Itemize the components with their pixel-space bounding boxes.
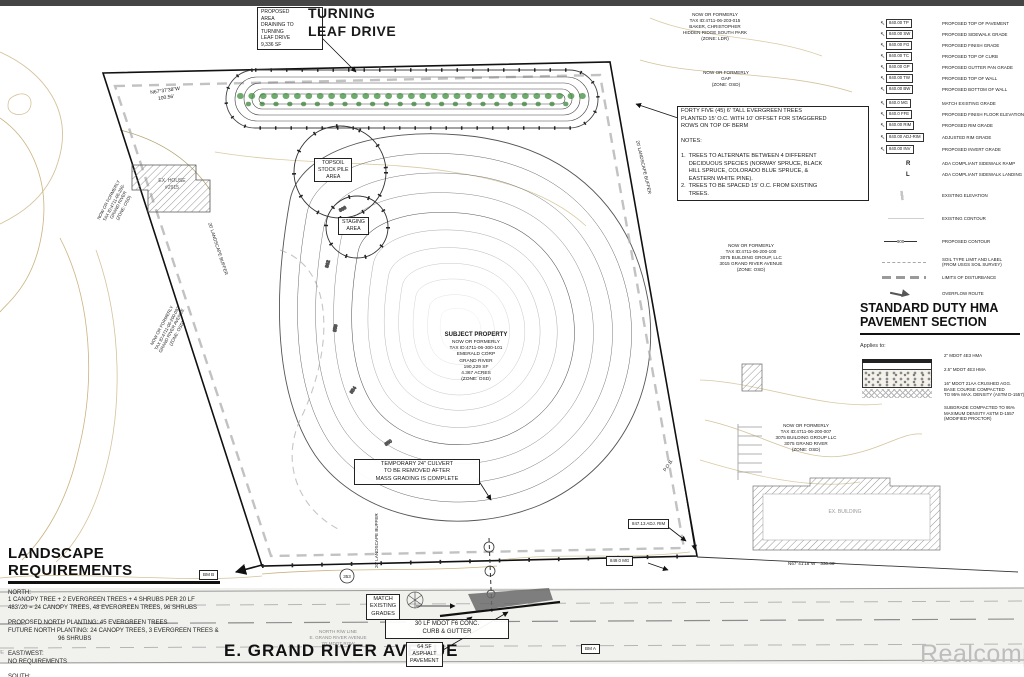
legend-grade-box: 840.00 SW <box>886 30 913 38</box>
legend-desc: PROPOSED BOTTOM OF WALL <box>942 87 1007 92</box>
title-underline <box>860 333 1020 336</box>
legend-grade-box: 840.00 TC <box>886 52 912 60</box>
leader-arrow-icon: ↖ <box>880 111 885 118</box>
legend-desc: EXISTING ELEVATION <box>942 193 988 198</box>
aggregate-base-layer <box>862 370 932 388</box>
pavement-section-title: STANDARD DUTY HMA PAVEMENT SECTION <box>860 301 1024 330</box>
legend-desc: PROPOSED FINISH FLOOR ELEVATION <box>942 112 1024 117</box>
legend-desc: ADA COMPLIANT SIDEWALK LANDING <box>942 172 1022 177</box>
overflow-route-symbol <box>890 290 910 298</box>
legend-grade-box: 840.00 BW <box>886 85 913 93</box>
contour-label: 866 <box>338 205 347 213</box>
landscape-buffer-label-bottom: 20' LANDSCAPE BUFFER <box>374 513 380 568</box>
existing-house-label: EX. HOUSE #2915 <box>152 178 192 191</box>
legend-grade-box: 840.00 FG <box>886 41 912 49</box>
legend-grade-box: 840.00 TW <box>886 74 913 82</box>
landscape-requirements-body: NORTH: 1 CANOPY TREE + 2 EVERGREEN TREES… <box>8 590 232 677</box>
realcomp-watermark: Realcomp <box>920 640 1024 669</box>
legend-desc: PROPOSED SIDEWALK GRADE <box>942 32 1007 37</box>
existing-building-label: EX. BUILDING <box>800 509 890 516</box>
asphalt-pavement-note: 64 SF ASPHALT PAVEMENT <box>406 642 443 667</box>
parcel-note-3015: NOW OR FORMERLY TAX ID:4711-06-200-100 3… <box>695 243 807 273</box>
pavement-callout: 2" MDOT 4E3 HMA <box>944 353 1024 359</box>
legend-grade-box: 840.0 FFE <box>886 110 912 118</box>
legend-grade-box: 840.00 ADJ-RIM <box>886 133 924 141</box>
contour-label: 858 <box>332 323 338 332</box>
legend-grade-box: 840.00 INV <box>886 145 914 153</box>
benchmark-a-label: BM A <box>581 644 600 654</box>
legend-desc: OVERFLOW ROUTE <box>942 291 984 296</box>
leader-arrow-icon: ↖ <box>880 31 885 38</box>
subgrade-layer <box>862 389 932 398</box>
legend-desc: LIMITS OF DISTURBANCE <box>942 275 996 280</box>
hma-leveling-course-layer <box>862 363 932 370</box>
parcel-note-gap: NOW OR FORMERLY GAP (ZONE: OSD) <box>686 70 766 88</box>
pavement-callout: 16" MDOT 21AA CRUSHED AGG. BASE COURSE C… <box>944 381 1024 398</box>
topsoil-stockpile-label: TOPSOIL STOCK PILE AREA <box>314 158 352 182</box>
leader-arrow-icon: ↖ <box>880 42 885 49</box>
staging-area-label: STAGING AREA <box>338 217 369 235</box>
leader-arrow-icon: ↖ <box>880 64 885 71</box>
pavement-callout: 2.5" MDOT 4E3 HMA <box>944 367 1024 373</box>
landscape-requirements-title: LANDSCAPE REQUIREMENTS <box>8 546 232 579</box>
match-grade-849-label: 849.0 MG <box>606 556 633 566</box>
existing-elevation-symbol <box>891 188 913 203</box>
legend-desc: PROPOSED INVERT GRADE <box>942 147 1001 152</box>
ada-ramp-symbol: R <box>906 161 910 167</box>
contour-value: 900 <box>897 239 904 244</box>
legend-desc: PROPOSED FINISH GRADE <box>942 43 999 48</box>
existing-contour-symbol <box>888 218 924 219</box>
proposed-contour-symbol: 900 <box>884 239 917 244</box>
legend-desc: SOIL TYPE LIMIT AND LABEL (FROM USGS SOI… <box>942 257 1002 267</box>
applies-to-label: Applies to: <box>860 343 1024 349</box>
temporary-culvert-note: TEMPORARY 24" CULVERT TO BE REMOVED AFTE… <box>354 459 480 485</box>
legend-desc: PROPOSED CONTOUR <box>942 239 990 244</box>
parcel-note-baker: NOW OR FORMERLY TAX ID:4711-06-203-015 B… <box>660 12 770 42</box>
pavement-layers-diagram <box>862 359 932 398</box>
ada-landing-symbol: L <box>906 172 910 178</box>
limits-of-disturbance-symbol <box>882 276 926 278</box>
legend-desc: PROPOSED TOP OF CURB <box>942 54 998 59</box>
legend-grade-box: 840.00 TP <box>886 19 912 27</box>
pavement-callout: SUBGRADE COMPACTED TO 95% MAXIMUM DENSIT… <box>944 405 1024 422</box>
leader-arrow-icon: ↖ <box>880 75 885 82</box>
turning-leaf-drive-label: TURNING LEAF DRIVE <box>308 4 396 40</box>
subject-property-title: SUBJECT PROPERTY <box>430 332 522 340</box>
shed-footprint <box>742 364 762 391</box>
legend-desc: ADJUSTED RIM GRADE <box>942 135 991 140</box>
leader-arrow-icon: ↖ <box>880 20 885 27</box>
parcel-note-3075: NOW OR FORMERLY TAX ID:4711-06-200-007 3… <box>752 423 860 453</box>
row-line-note: NORTH R/W LINE E. GRAND RIVER AVENUE 70'… <box>288 629 388 647</box>
match-existing-grades-note: MATCH EXISTING GRADES <box>366 594 400 620</box>
sheet-top-border <box>0 0 1024 6</box>
property-boundary <box>103 62 697 566</box>
pavement-section-detail: STANDARD DUTY HMA PAVEMENT SECTION Appli… <box>860 301 1024 349</box>
legend-desc: MATCH EXISTING GRADE <box>942 101 996 106</box>
contour-label: 850 <box>384 438 393 447</box>
subject-property-note: NOW OR FORMERLY TAX ID:4711-06-300-101 E… <box>430 340 522 384</box>
grand-river-avenue-faint-label: E. GRAND RIVER AVENUE <box>0 650 4 657</box>
structure-353-bubble: 353 <box>340 569 354 583</box>
evergreen-tree-notes: FORTY FIVE (45) 6' TALL EVERGREEN TREES … <box>677 106 869 201</box>
leader-arrow-icon: ↖ <box>880 53 885 60</box>
leader-arrow-icon: ↖ <box>880 122 885 129</box>
contour-label: 854 <box>349 385 358 394</box>
soil-limit-line <box>280 250 340 530</box>
adjusted-rim-label: 847.13 ADJ. RIM <box>628 519 669 529</box>
site-plan-sheet: 866 862 858 854 850 848 <box>0 0 1024 677</box>
contour-label: 862 <box>324 259 331 268</box>
legend-desc: ADA COMPLIANT SIDEWALK RAMP <box>942 161 1015 166</box>
leader-arrow-icon: ↖ <box>880 134 885 141</box>
legend-desc: PROPOSED TOP OF PAVEMENT <box>942 21 1009 26</box>
legend-grade-box: 840.0 MG <box>886 99 911 107</box>
structure-353-label: 353 <box>343 574 351 579</box>
landscape-requirements: LANDSCAPE REQUIREMENTS NORTH: 1 CANOPY T… <box>8 546 232 677</box>
bearing-southeast: N67°41'18"W 330.00' <box>788 561 835 567</box>
leader-arrow-icon: ↖ <box>880 100 885 107</box>
grading-legend: ↖840.00 TPPROPOSED TOP OF PAVEMENT ↖840.… <box>880 8 1024 300</box>
leader-arrow-icon: ↖ <box>880 146 885 153</box>
legend-grade-box: 840.00 RIM <box>886 121 914 129</box>
adjacent-parcel-line <box>697 557 1018 572</box>
legend-desc: PROPOSED GUTTER PAN GRADE <box>942 65 1013 70</box>
curb-gutter-note: 30 LF MDOT F6 CONC. CURB & GUTTER <box>385 619 509 639</box>
legend-desc: EXISTING CONTOUR <box>942 216 986 221</box>
leader-arrow-icon: ↖ <box>880 86 885 93</box>
title-underline <box>8 581 220 584</box>
soil-limit-symbol <box>882 262 926 263</box>
legend-desc: PROPOSED TOP OF WALL <box>942 76 997 81</box>
legend-grade-box: 840.00 GP <box>886 63 913 71</box>
legend-desc: PROPOSED RIM GRADE <box>942 123 993 128</box>
